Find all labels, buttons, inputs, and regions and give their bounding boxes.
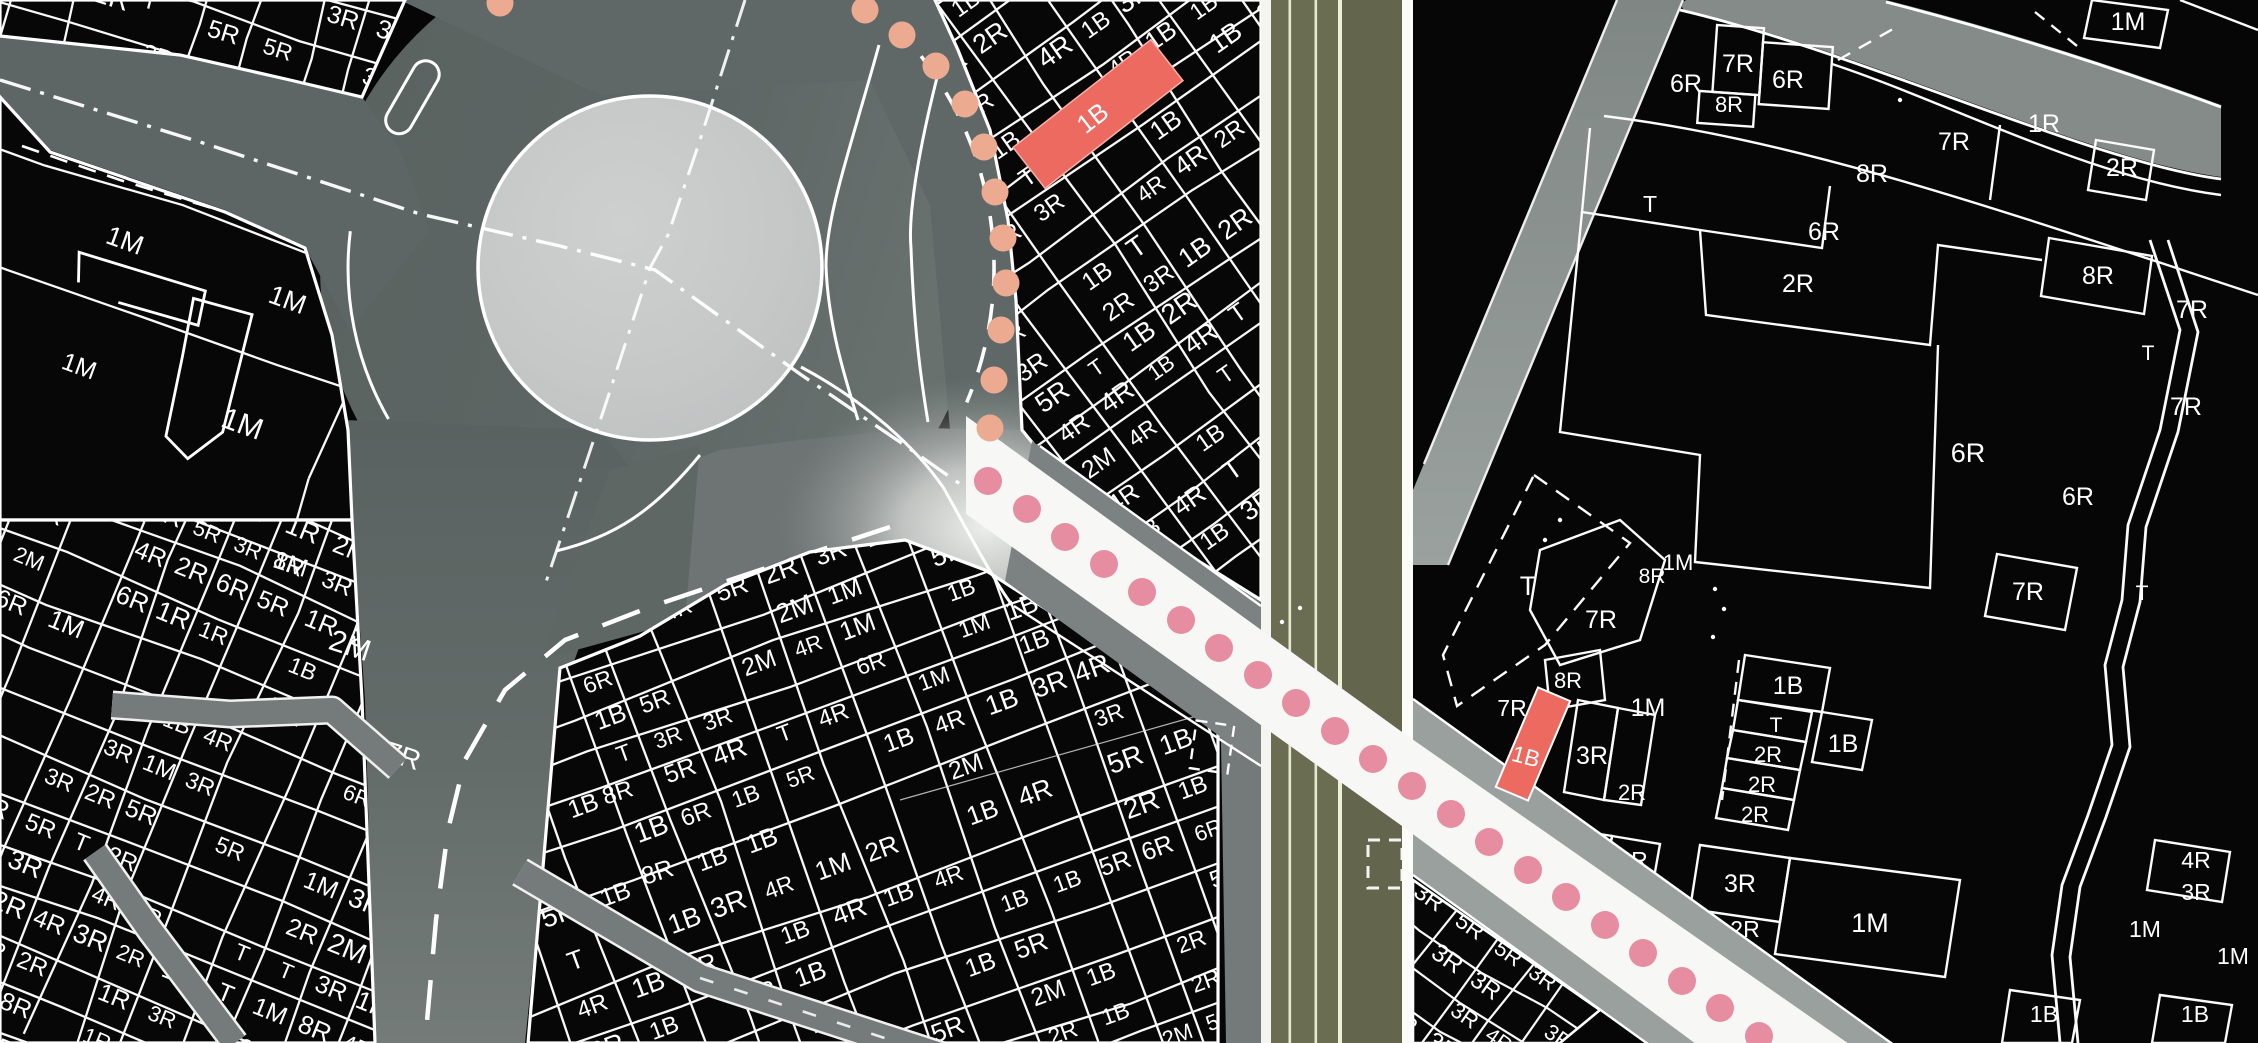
svg-text:1B: 1B: [1773, 672, 1804, 700]
svg-text:2R: 2R: [1741, 802, 1769, 827]
svg-text:T: T: [2136, 582, 2149, 605]
svg-text:T: T: [2142, 342, 2155, 365]
svg-text:3R: 3R: [1576, 742, 1608, 770]
svg-text:T: T: [1643, 191, 1657, 217]
svg-text:3R: 3R: [2181, 879, 2210, 905]
svg-text:8R: 8R: [1639, 565, 1666, 588]
svg-text:7R: 7R: [1585, 606, 1617, 634]
svg-text:7R: 7R: [1938, 128, 1970, 156]
svg-text:1M: 1M: [1631, 694, 1666, 722]
svg-text:4R: 4R: [2181, 847, 2210, 873]
svg-text:6R: 6R: [1772, 66, 1804, 94]
svg-text:1B: 1B: [2030, 1001, 2058, 1027]
svg-text:1M: 1M: [1851, 908, 1889, 938]
svg-text:1M: 1M: [2217, 943, 2249, 969]
svg-text:7R: 7R: [1722, 50, 1754, 78]
svg-text:8R: 8R: [1554, 668, 1582, 693]
svg-text:1B: 1B: [1828, 730, 1859, 758]
svg-text:3R: 3R: [1724, 870, 1756, 898]
svg-text:2R: 2R: [2106, 154, 2138, 182]
svg-text:2R: 2R: [1782, 270, 1814, 298]
svg-text:1M: 1M: [2129, 916, 2161, 942]
svg-text:1B: 1B: [2181, 1001, 2209, 1027]
svg-text:7R: 7R: [1497, 695, 1526, 721]
svg-text:T: T: [1770, 714, 1783, 737]
svg-text:1R: 1R: [2028, 110, 2060, 138]
svg-text:6R: 6R: [1670, 70, 1702, 98]
svg-text:1M: 1M: [1663, 550, 1694, 575]
svg-text:7R: 7R: [2012, 578, 2044, 606]
svg-text:8R: 8R: [1856, 160, 1888, 188]
svg-text:8R: 8R: [2082, 262, 2114, 290]
svg-text:1M: 1M: [2111, 8, 2146, 36]
svg-text:2R: 2R: [1618, 780, 1646, 805]
svg-text:6R: 6R: [1808, 218, 1840, 246]
svg-text:6R: 6R: [1951, 438, 1986, 468]
svg-text:6R: 6R: [2062, 483, 2094, 511]
svg-text:8R: 8R: [1715, 92, 1743, 117]
